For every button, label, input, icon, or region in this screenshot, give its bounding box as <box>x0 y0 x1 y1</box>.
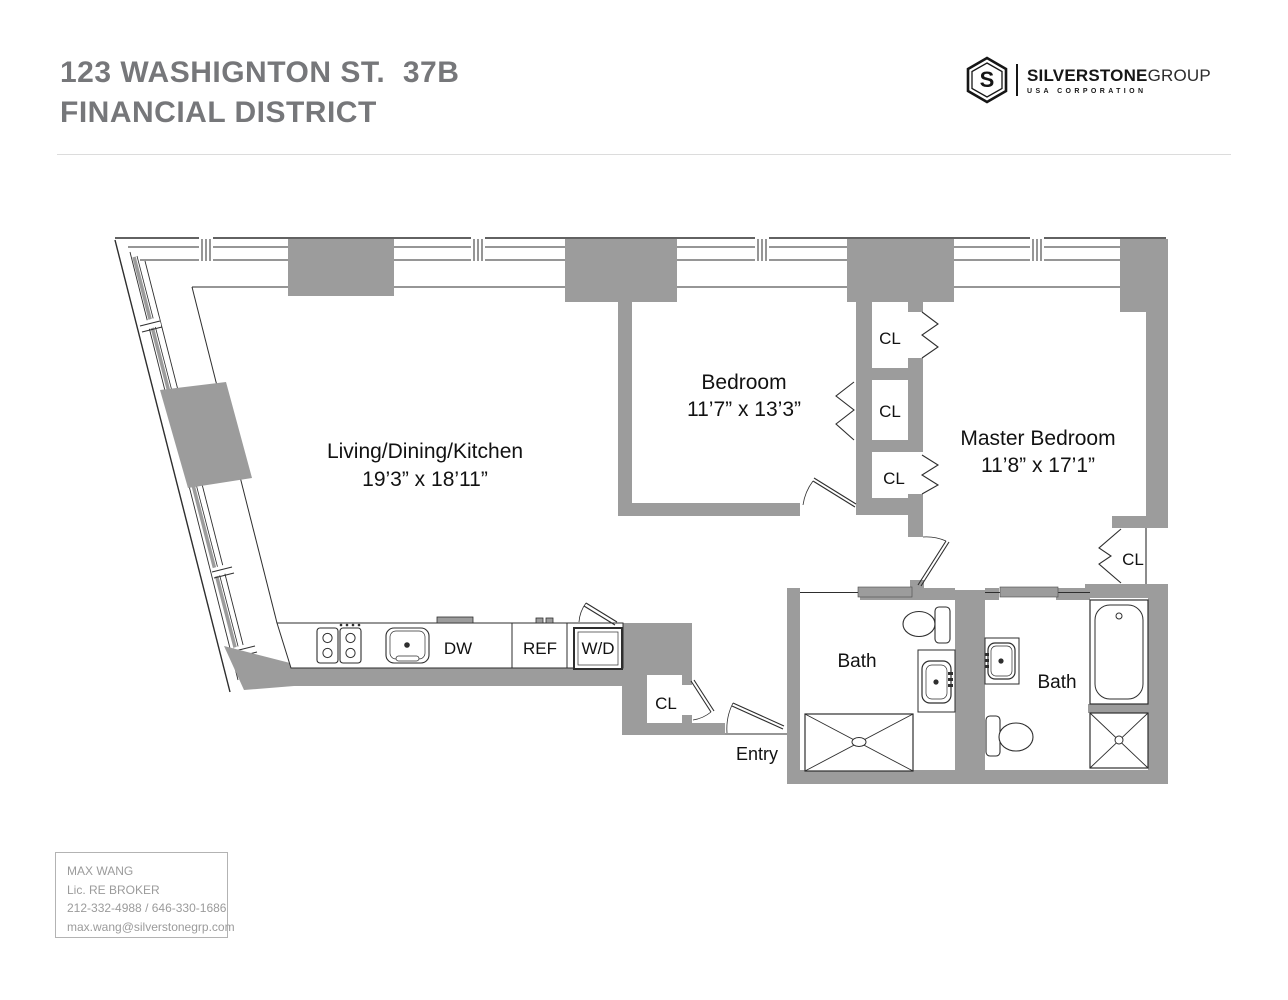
door-bedroom <box>803 478 856 507</box>
column <box>288 239 394 296</box>
floor-plan: Living/Dining/Kitchen 19’3” x 18’11” Bed… <box>0 0 1288 1000</box>
closet-wall <box>872 440 908 452</box>
bath-wall <box>985 588 999 600</box>
bedroom-wall <box>618 296 632 516</box>
window-mullion-icon <box>140 321 162 332</box>
closet-label: CL <box>655 694 677 713</box>
bath-wall <box>955 590 985 784</box>
bifold-door-icon <box>922 455 938 494</box>
bath-wall <box>787 588 800 784</box>
window-mullion-icon <box>199 237 213 263</box>
room-label-living: Living/Dining/Kitchen <box>327 440 523 463</box>
wall-junction <box>224 646 294 690</box>
room-label-bath2: Bath <box>1037 672 1076 693</box>
closet-wall <box>872 368 908 380</box>
door-master-bedroom <box>918 537 949 586</box>
room-dims-master: 11’8” x 17’1” <box>981 454 1095 477</box>
right-wall <box>1146 239 1168 516</box>
broker-email: max.wang@silverstonegrp.com <box>67 918 227 937</box>
appliance-label-dw: DW <box>444 639 472 658</box>
broker-license: Lic. RE BROKER <box>67 881 227 900</box>
room-label-bath1: Bath <box>837 651 876 672</box>
broker-info-box: MAX WANG Lic. RE BROKER 212-332-4988 / 6… <box>55 852 228 938</box>
bath-wall <box>1088 704 1150 713</box>
door-jamb <box>682 675 692 685</box>
door-washer-closet <box>579 603 617 625</box>
bath-sink-icon <box>918 650 955 712</box>
counter-detail <box>536 618 543 623</box>
counter-detail <box>546 618 553 623</box>
room-dims-living: 19’3” x 18’11” <box>362 468 488 491</box>
broker-name: MAX WANG <box>67 862 227 881</box>
appliance-label-wd: W/D <box>581 639 614 658</box>
closet-label: CL <box>1122 550 1144 569</box>
bath-wall <box>1056 588 1090 600</box>
column <box>565 239 677 302</box>
right-wall <box>1148 598 1168 784</box>
window-mullion-icon <box>755 237 769 263</box>
room-label-master: Master Bedroom <box>960 427 1115 450</box>
door-jamb <box>682 715 692 725</box>
entry-closet-wall <box>622 623 692 675</box>
entry-closet-wall <box>622 723 725 735</box>
closet-jamb <box>1112 516 1168 528</box>
shower-icon <box>1090 713 1148 768</box>
sliding-door-bath1 <box>800 587 912 597</box>
closet-wall <box>908 494 923 537</box>
bathtub-icon <box>1090 600 1148 704</box>
shower-icon <box>805 714 913 771</box>
window-mullion-icon <box>471 237 485 263</box>
door-entry <box>725 703 787 734</box>
toilet-icon <box>986 716 1033 756</box>
appliance-label-ref: REF <box>523 639 557 658</box>
bifold-door-icon <box>1099 529 1121 583</box>
bath-sink-icon <box>985 638 1019 684</box>
door-entry-closet <box>691 680 714 720</box>
entry-closet-wall <box>622 675 647 725</box>
closet-label: CL <box>879 402 901 421</box>
kitchen-sink-icon <box>386 628 429 663</box>
toilet-icon <box>903 607 950 643</box>
closet-label: CL <box>879 329 901 348</box>
bottom-wall <box>787 770 1168 784</box>
closet-wall <box>908 358 923 452</box>
closet-jamb <box>1085 584 1168 598</box>
labels: Living/Dining/Kitchen 19’3” x 18’11” Bed… <box>327 329 1144 764</box>
closet-label: CL <box>883 469 905 488</box>
room-dims-bedroom: 11’7” x 13’3” <box>687 398 801 421</box>
room-label-entry: Entry <box>736 744 778 764</box>
bifold-door-icon <box>922 312 938 358</box>
column <box>847 239 954 302</box>
room-label-bedroom: Bedroom <box>701 371 786 394</box>
counter-vent <box>437 617 473 623</box>
bedroom-wall <box>618 503 800 516</box>
broker-phones: 212-332-4988 / 646-330-1686 <box>67 899 227 918</box>
closet-wall <box>908 296 923 312</box>
window-mullion-icon <box>212 567 234 578</box>
bifold-door-icon <box>836 382 854 440</box>
window-mullion-icon <box>1030 237 1044 263</box>
closet-wall <box>856 296 872 515</box>
